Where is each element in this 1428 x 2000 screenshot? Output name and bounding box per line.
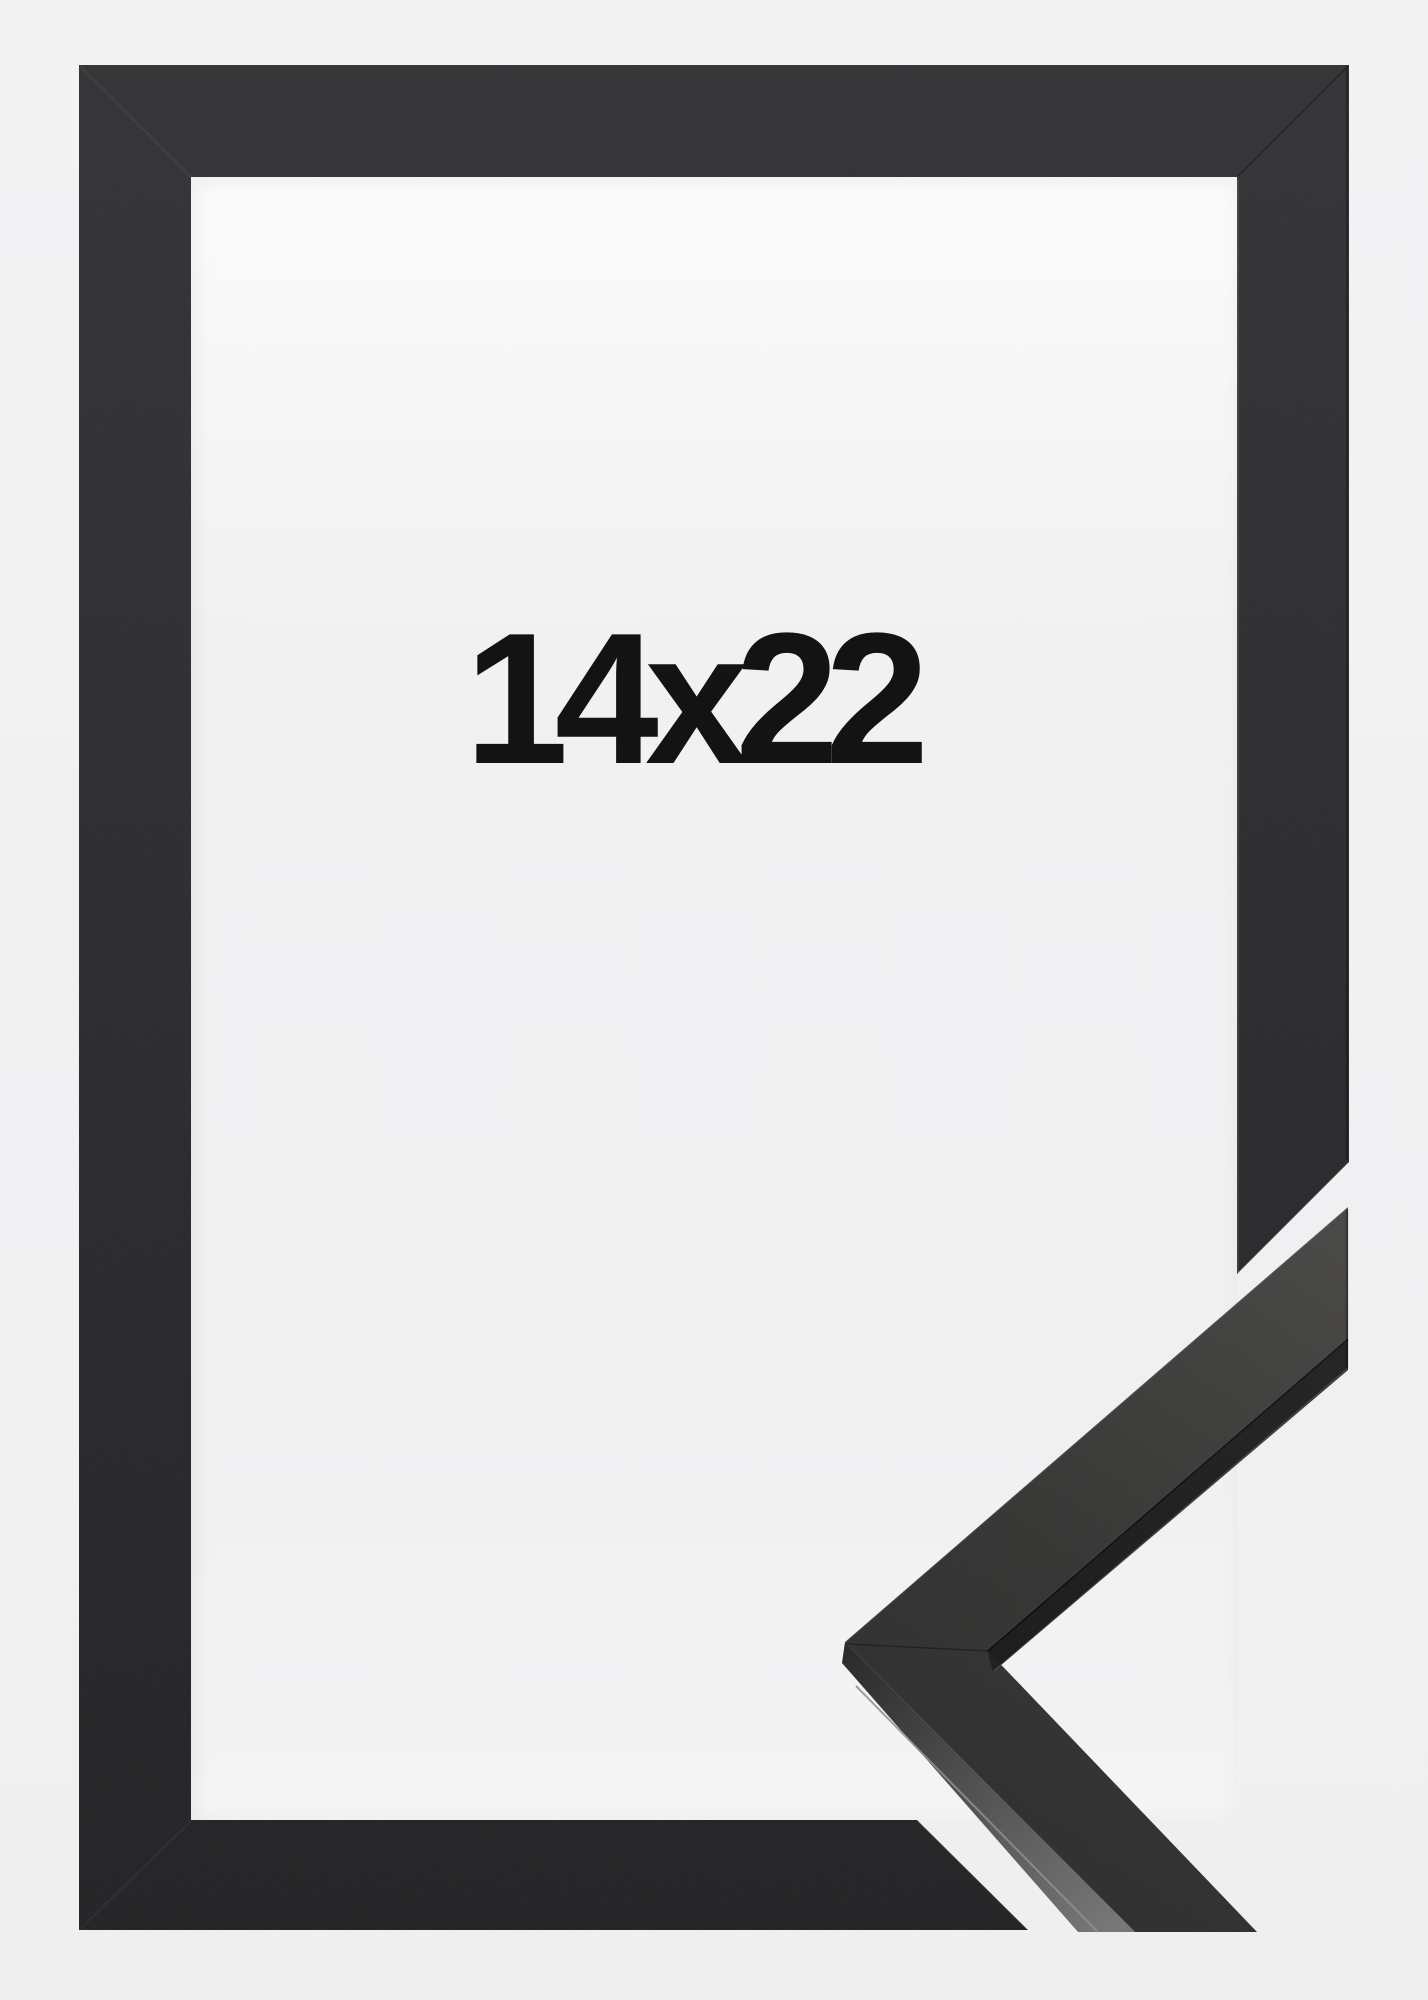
frame-graphic xyxy=(0,0,1428,2000)
grain-overlay xyxy=(0,0,1428,2000)
picture-frame xyxy=(79,65,1349,1930)
product-photo: 14x22 xyxy=(0,0,1428,2000)
frame-size-label: 14x22 xyxy=(465,605,916,792)
frame-body xyxy=(79,65,1349,1930)
